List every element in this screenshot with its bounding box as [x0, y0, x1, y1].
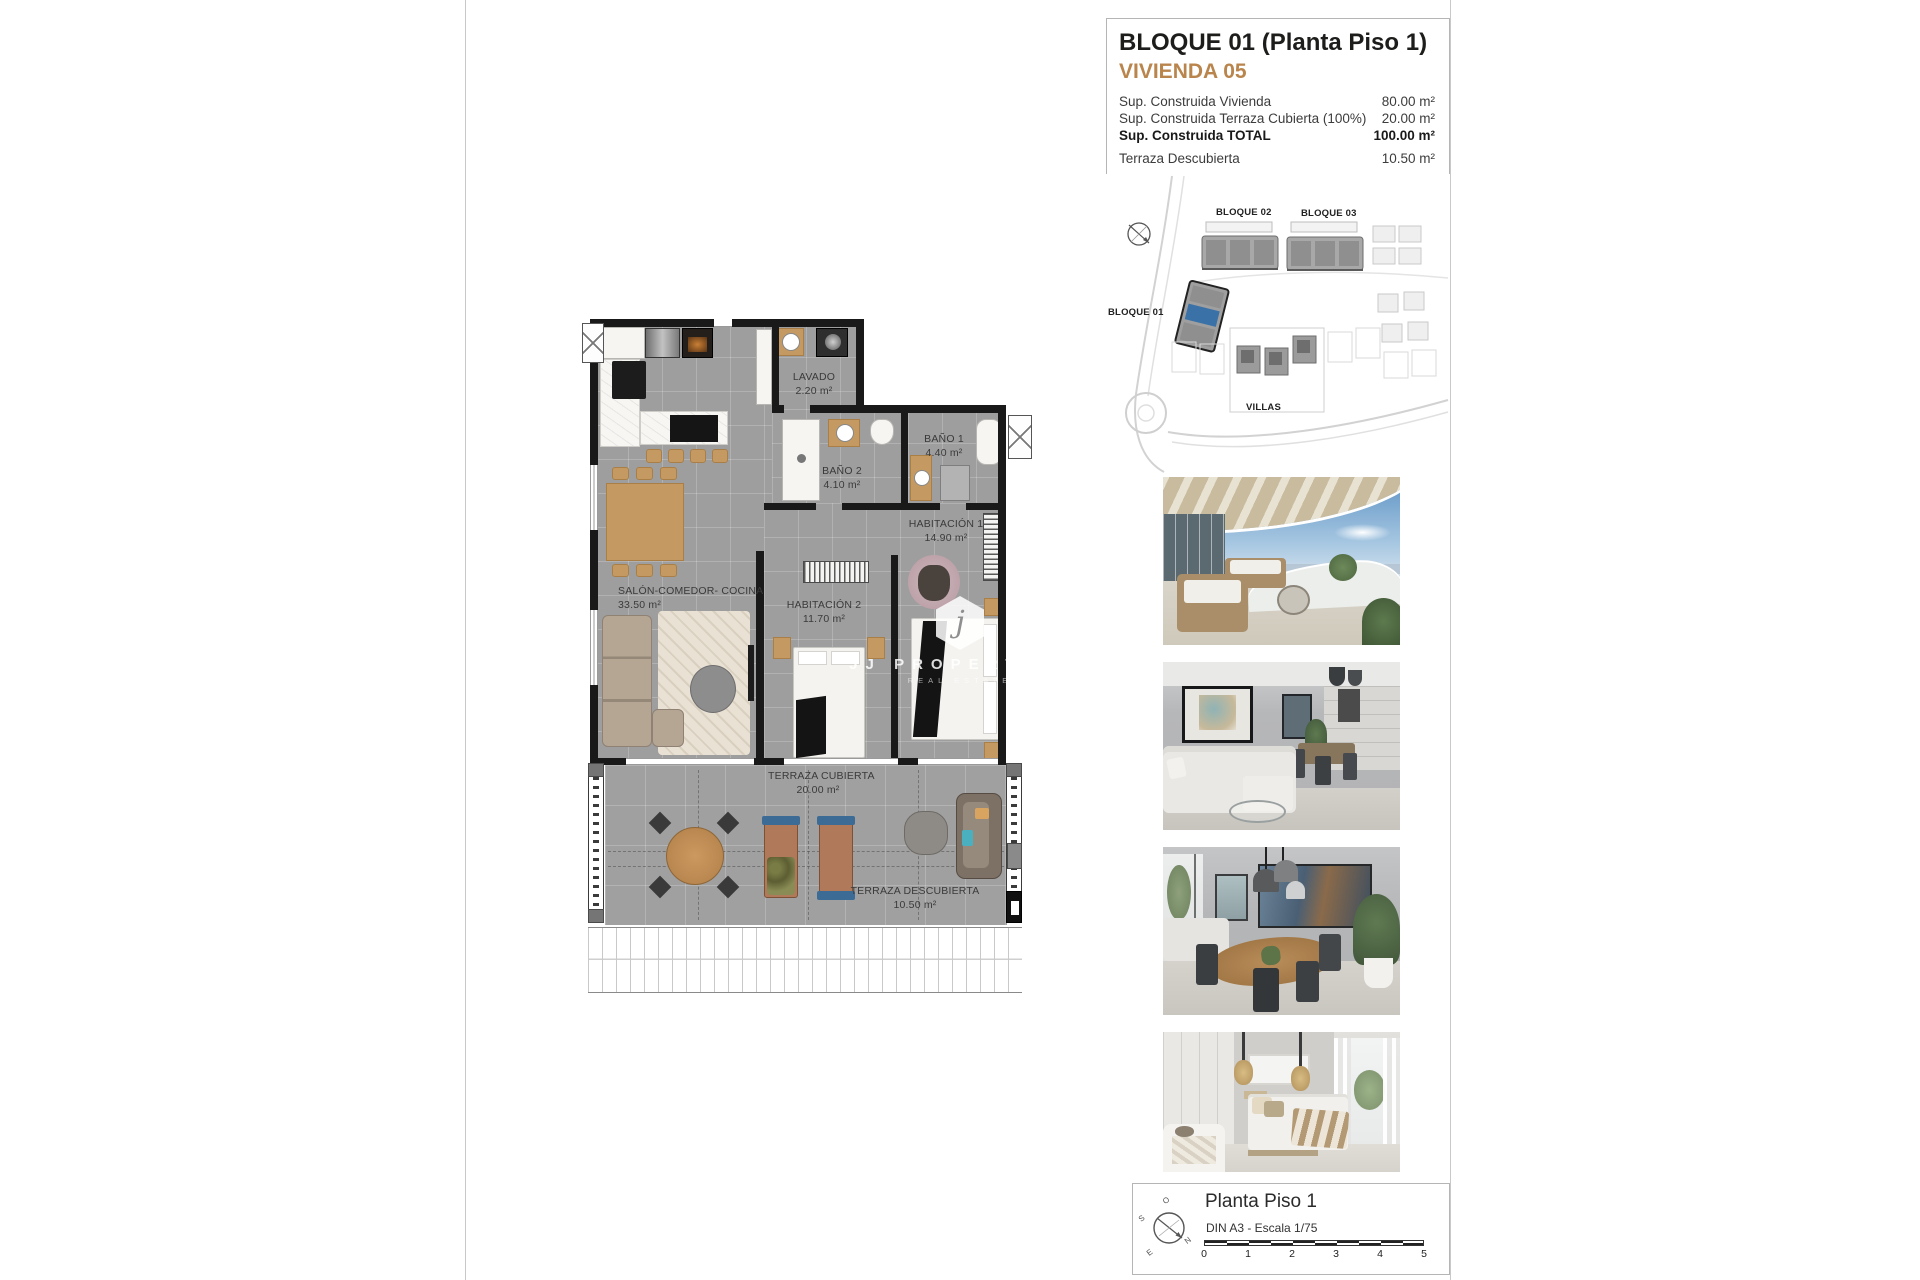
- room-label-lavado: LAVADO2.20 m²: [772, 371, 856, 398]
- cushion: [1184, 580, 1241, 603]
- railing-post: [1007, 843, 1022, 869]
- oven-glow: [688, 337, 707, 352]
- sun-lounger: [764, 818, 798, 898]
- lounger-blanket: [767, 857, 795, 895]
- wall: [856, 319, 864, 409]
- watermark-tagline: REAL ESTATE: [840, 676, 1080, 685]
- site-compass-icon: [1128, 223, 1150, 245]
- compass-letter-s: S: [1137, 1213, 1147, 1223]
- area-row: Terraza Descubierta 10.50 m²: [1119, 150, 1435, 167]
- outdoor-greenery: [1167, 865, 1191, 920]
- ceiling: [1163, 662, 1400, 686]
- sun-lounger: [819, 818, 853, 898]
- d ining-chair: [1315, 756, 1332, 785]
- wall: [842, 503, 940, 510]
- dining-table: [606, 483, 684, 561]
- photo-living-room: [1163, 662, 1400, 830]
- site-plan: BLOQUE 01 BLOQUE 02 BLOQUE 03 VILLAS: [1106, 174, 1450, 474]
- bloque01-label: BLOQUE 01: [1108, 307, 1164, 318]
- unit-title: VIVIENDA 05: [1119, 60, 1435, 84]
- cushion-orange: [975, 808, 989, 819]
- lamp-cord: [1242, 1032, 1244, 1063]
- room-label-terraza-descubierta: TERRAZA DESCUBIERTA10.50 m²: [850, 885, 980, 912]
- sofa-chaise: [652, 709, 684, 747]
- lamp-cord: [1299, 1032, 1301, 1068]
- area-row: Sup. Construida Terraza Cubierta (100%) …: [1119, 110, 1435, 127]
- art-abstract: [1199, 695, 1235, 731]
- tv: [748, 645, 754, 701]
- armchair: [918, 565, 950, 601]
- wall: [966, 503, 1006, 510]
- area-row: Sup. Construida Vivienda 80.00 m²: [1119, 93, 1435, 110]
- wall: [590, 319, 714, 327]
- lounger-headrest: [817, 816, 855, 825]
- stool: [646, 449, 662, 463]
- pendant-lamp: [1348, 670, 1362, 685]
- chair: [1319, 934, 1340, 971]
- footer-compass-icon: [1147, 1206, 1191, 1250]
- dining-chair: [612, 564, 629, 577]
- room-label-terraza-cubierta: TERRAZA CUBIERTA20.00 m²: [768, 770, 868, 797]
- cushion-cyan: [962, 830, 973, 846]
- sliding-door: [784, 758, 898, 765]
- pillow: [983, 681, 997, 734]
- oven: [682, 328, 713, 358]
- pendant-dome: [1274, 860, 1298, 882]
- chair: [1253, 968, 1279, 1012]
- throw-blanket: [1172, 1136, 1216, 1165]
- scale-tick: 5: [1421, 1248, 1427, 1260]
- wall: [764, 503, 816, 510]
- terrace-railing-left: [588, 765, 604, 923]
- sliding-door: [918, 758, 998, 765]
- sliding-door: [626, 758, 754, 765]
- terrace-table: [666, 827, 724, 885]
- window: [590, 465, 598, 530]
- bed-throw: [796, 696, 826, 758]
- dining-chair: [636, 564, 653, 577]
- sheer-curtain: [1383, 1038, 1400, 1147]
- wall: [590, 685, 598, 765]
- watermark-brand: JJ PROPERTIES: [800, 656, 1120, 673]
- foreground-chair: [1163, 1124, 1225, 1172]
- villas-label: VILLAS: [1246, 402, 1281, 413]
- plant: [1353, 894, 1400, 965]
- footer-scale-text: DIN A3 - Escala 1/75: [1206, 1221, 1317, 1235]
- cushion: [1166, 757, 1187, 780]
- wall-art: [1182, 686, 1253, 743]
- shaft-box: [582, 323, 604, 363]
- wall: [898, 758, 918, 765]
- nightstand: [773, 637, 791, 659]
- photo-terrace: [1163, 477, 1400, 645]
- rattan-pendant: [1291, 1066, 1310, 1091]
- page-right-edge: [1450, 0, 1451, 1280]
- bloque01-building: [1175, 280, 1229, 352]
- railing-post: [1006, 763, 1022, 777]
- railing-post: [588, 763, 604, 777]
- sheet-title: BLOQUE 01 (Planta Piso 1): [1119, 29, 1435, 57]
- dining-chair: [660, 467, 677, 480]
- villas-buildings: [1237, 336, 1316, 375]
- wardrobe-hab2: [803, 561, 869, 583]
- pillow: [1264, 1101, 1284, 1117]
- wall: [754, 758, 784, 765]
- wicker-armchair: [1177, 574, 1248, 631]
- plan-sheet: LAVADO2.20 m² BAÑO 24.10 m² BAÑO 14.40 m…: [0, 0, 1920, 1280]
- wall: [998, 758, 1006, 765]
- lounger-headrest: [762, 816, 800, 825]
- railing-post-dark: [1006, 891, 1022, 923]
- area-value: 20.00 m²: [1382, 110, 1435, 127]
- toilet-2: [870, 419, 894, 445]
- sofa: [602, 615, 652, 747]
- rattan-pendant: [1234, 1060, 1253, 1085]
- scale-tick: 4: [1377, 1248, 1383, 1260]
- outdoor-sofa: [956, 793, 1002, 879]
- walkway: [588, 927, 1022, 993]
- entry-closet: [756, 329, 772, 405]
- striped-throw: [1291, 1108, 1349, 1149]
- plant-pot: [1364, 958, 1392, 988]
- page-left-edge: [465, 0, 466, 1280]
- wall: [590, 530, 598, 610]
- sink-2: [836, 424, 854, 442]
- stool: [712, 449, 728, 463]
- wall-art-small: [1215, 874, 1248, 921]
- dining-chair: [660, 564, 677, 577]
- footer-title-block: O S N E Planta Piso 1 DIN A3 - Escala 1/…: [1132, 1183, 1450, 1275]
- photo-dining-room: [1163, 847, 1400, 1015]
- fridge: [612, 361, 646, 399]
- site-plan-drawing: [1106, 174, 1450, 474]
- stool: [690, 449, 706, 463]
- side-table: [904, 811, 948, 855]
- vanity-1: [910, 455, 932, 501]
- scale-tick: 2: [1289, 1248, 1295, 1260]
- area-label: Sup. Construida Vivienda: [1119, 93, 1271, 110]
- washer-drum: [825, 334, 841, 350]
- bloque03-label: BLOQUE 03: [1301, 208, 1357, 219]
- bloque03-building: [1287, 237, 1363, 270]
- cloud: [1334, 524, 1391, 541]
- plant: [1362, 598, 1400, 645]
- area-label: Terraza Descubierta: [1119, 150, 1240, 167]
- extractor-hood: [1338, 689, 1359, 723]
- photo-bedroom: [1163, 1032, 1400, 1172]
- area-row-total: Sup. Construida TOTAL 100.00 m²: [1119, 127, 1435, 144]
- chair: [1296, 961, 1320, 1001]
- round-side-table: [1277, 585, 1310, 615]
- title-block: BLOQUE 01 (Planta Piso 1) VIVIENDA 05 Su…: [1106, 18, 1450, 174]
- area-label: Sup. Construida TOTAL: [1119, 127, 1271, 144]
- wall: [998, 405, 1006, 765]
- dining-chair: [612, 467, 629, 480]
- shower-1: [940, 465, 970, 501]
- railing-post: [588, 909, 604, 923]
- dining-chair: [636, 467, 653, 480]
- scale-bar: [1204, 1240, 1424, 1246]
- room-label-bano1: BAÑO 14.40 m²: [902, 433, 986, 460]
- washing-machine: [816, 328, 848, 357]
- area-value: 80.00 m²: [1382, 93, 1435, 110]
- shaft-box: [1008, 415, 1032, 459]
- area-table: Sup. Construida Vivienda 80.00 m² Sup. C…: [1119, 93, 1435, 167]
- wall: [732, 319, 864, 327]
- window: [590, 610, 598, 685]
- cushion: [1230, 560, 1282, 574]
- room-label-bano2: BAÑO 24.10 m²: [800, 465, 884, 492]
- room-label-habitacion1: HABITACIÓN 114.90 m²: [896, 518, 996, 545]
- table-plant: [1261, 945, 1283, 966]
- scale-tick: 3: [1333, 1248, 1339, 1260]
- room-label-habitacion2: HABITACIÓN 211.70 m²: [774, 599, 874, 626]
- wall: [810, 405, 1005, 413]
- dishwasher: [645, 328, 680, 358]
- kitchen-cabinets: [600, 327, 645, 359]
- bed: [1248, 1094, 1348, 1150]
- vanity-2: [828, 419, 860, 447]
- laundry-sink-counter: [776, 328, 804, 356]
- chair: [1196, 944, 1217, 984]
- area-value: 100.00 m²: [1373, 127, 1435, 144]
- balcony-greenery: [1354, 1070, 1386, 1109]
- coffee-table: [690, 665, 736, 713]
- dining-chair: [1343, 753, 1357, 780]
- area-value: 10.50 m²: [1382, 150, 1435, 167]
- wall: [772, 405, 784, 413]
- entrance-door: [714, 319, 732, 327]
- wall: [756, 551, 764, 758]
- shower-drain: [797, 454, 806, 463]
- sink-1: [914, 470, 930, 486]
- pendant-dome: [1286, 881, 1305, 899]
- bed-frame: [1248, 1150, 1318, 1157]
- laundry-sink: [782, 333, 800, 351]
- bloque02-building: [1202, 236, 1278, 269]
- compass-letter-o: O: [1161, 1195, 1171, 1206]
- pendant-lamp: [1329, 667, 1346, 685]
- stool: [668, 449, 684, 463]
- area-label: Sup. Construida Terraza Cubierta (100%): [1119, 110, 1366, 127]
- scale-tick: 1: [1245, 1248, 1251, 1260]
- bloque02-label: BLOQUE 02: [1216, 207, 1272, 218]
- cooktop: [670, 415, 718, 442]
- post-core: [1011, 901, 1019, 915]
- room-label-salon: SALÓN-COMEDOR- COCINA33.50 m²: [618, 585, 758, 612]
- tray: [1175, 1126, 1193, 1136]
- footer-title: Planta Piso 1: [1205, 1191, 1317, 1213]
- scale-tick: 0: [1201, 1248, 1207, 1260]
